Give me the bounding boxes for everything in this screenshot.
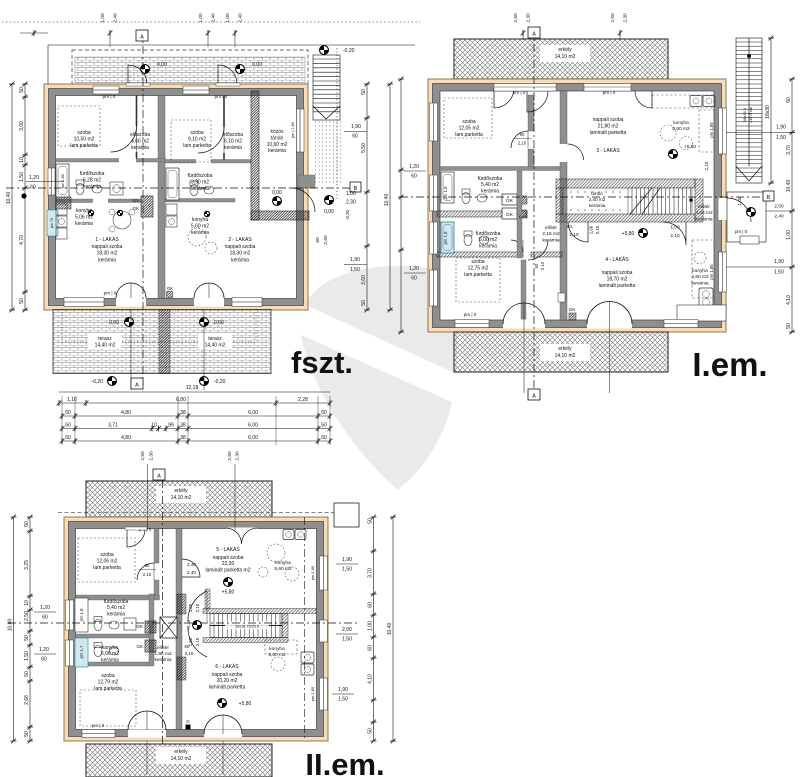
svg-text:szoba: szoba bbox=[77, 130, 91, 136]
svg-text:GK: GK bbox=[506, 212, 514, 218]
svg-text:9,00 m2: 9,00 m2 bbox=[268, 652, 286, 658]
svg-text:szoba: szoba bbox=[100, 552, 114, 558]
svg-text:60: 60 bbox=[368, 602, 374, 608]
svg-text:12,06 m2: 12,06 m2 bbox=[97, 558, 118, 564]
svg-text:konyha: konyha bbox=[269, 646, 285, 652]
svg-text:pm 1,7: pm 1,7 bbox=[79, 645, 84, 658]
svg-text:90: 90 bbox=[145, 563, 150, 568]
svg-text:1,00: 1,00 bbox=[188, 637, 193, 646]
svg-text:5,28 m2: 5,28 m2 bbox=[83, 177, 101, 183]
svg-text:2,40: 2,40 bbox=[113, 13, 119, 23]
svg-text:60: 60 bbox=[41, 657, 47, 663]
svg-text:4,60 m2: 4,60 m2 bbox=[131, 138, 149, 144]
svg-text:60: 60 bbox=[368, 645, 374, 651]
svg-text:10: 10 bbox=[19, 157, 25, 163]
svg-text:terasz: terasz bbox=[208, 336, 222, 342]
svg-text:3,00: 3,00 bbox=[19, 121, 25, 131]
svg-text:2,30: 2,30 bbox=[149, 451, 155, 461]
svg-text:1,00: 1,00 bbox=[346, 191, 356, 197]
svg-text:60: 60 bbox=[352, 134, 358, 140]
svg-text:2,40 m2: 2,40 m2 bbox=[589, 197, 606, 202]
svg-text:pm 1,85: pm 1,85 bbox=[709, 122, 714, 138]
svg-text:5,50: 5,50 bbox=[361, 143, 367, 153]
svg-text:kerámia: kerámia bbox=[481, 188, 499, 194]
svg-text:16x18,75/25,0: 16x18,75/25,0 bbox=[235, 625, 259, 629]
svg-text:fürdőszoba: fürdőszoba bbox=[478, 176, 503, 182]
svg-text:2 - LAKÁS: 2 - LAKÁS bbox=[228, 236, 252, 243]
svg-text:10: 10 bbox=[24, 600, 30, 606]
svg-text:50: 50 bbox=[65, 422, 71, 428]
svg-text:3,90 m2: 3,90 m2 bbox=[191, 179, 209, 185]
svg-text:10,40: 10,40 bbox=[6, 192, 12, 205]
svg-text:50: 50 bbox=[24, 635, 30, 641]
svg-text:szoba: szoba bbox=[190, 130, 204, 136]
svg-text:18,30 m2: 18,30 m2 bbox=[97, 251, 118, 257]
svg-text:14,10 m2: 14,10 m2 bbox=[171, 756, 192, 762]
svg-text:14,10 m2: 14,10 m2 bbox=[555, 353, 576, 359]
svg-text:konyha: konyha bbox=[102, 645, 118, 651]
svg-text:4,70: 4,70 bbox=[19, 235, 25, 245]
svg-text:laminált parketta: laminált parketta bbox=[599, 283, 636, 289]
svg-text:kerámia: kerámia bbox=[479, 243, 497, 249]
svg-text:5,60 m2: 5,60 m2 bbox=[274, 566, 292, 572]
svg-text:10,00: 10,00 bbox=[8, 619, 14, 632]
svg-text:lam.parketta: lam.parketta bbox=[93, 565, 121, 571]
svg-text:60: 60 bbox=[534, 263, 539, 268]
svg-text:5 - LAKÁS: 5 - LAKÁS bbox=[216, 546, 240, 553]
svg-text:2,50: 2,50 bbox=[227, 451, 233, 461]
svg-text:50: 50 bbox=[786, 323, 792, 329]
svg-text:38: 38 bbox=[180, 422, 186, 428]
svg-text:10,60 m2: 10,60 m2 bbox=[267, 142, 288, 148]
svg-text:pm 1,8: pm 1,8 bbox=[443, 231, 448, 244]
svg-text:II.em.: II.em. bbox=[305, 747, 384, 777]
svg-text:0,00: 0,00 bbox=[109, 320, 119, 326]
svg-text:4,80: 4,80 bbox=[121, 435, 131, 441]
svg-text:+5,60: +5,60 bbox=[684, 144, 696, 150]
svg-text:-0,20: -0,20 bbox=[343, 48, 355, 54]
svg-text:50: 50 bbox=[24, 731, 30, 737]
svg-text:1,00: 1,00 bbox=[670, 225, 680, 231]
svg-text:előtér: előtér bbox=[157, 645, 169, 651]
svg-text:fürdőszoba: fürdőszoba bbox=[80, 171, 105, 177]
svg-text:1,90: 1,90 bbox=[776, 125, 786, 131]
svg-text:kerámia: kerámia bbox=[131, 145, 149, 151]
svg-text:50: 50 bbox=[321, 435, 327, 441]
svg-text:kerámia: kerámia bbox=[691, 280, 708, 286]
svg-text:50: 50 bbox=[24, 521, 30, 527]
svg-text:laminált parketta: laminált parketta bbox=[209, 684, 246, 690]
svg-text:60: 60 bbox=[42, 615, 48, 621]
svg-text:18,70 m2: 18,70 m2 bbox=[607, 277, 628, 283]
svg-text:erkély: erkély bbox=[174, 749, 188, 755]
svg-text:pm | 0: pm | 0 bbox=[464, 312, 477, 317]
svg-text:0,00: 0,00 bbox=[252, 62, 262, 68]
svg-text:4,60 m2: 4,60 m2 bbox=[691, 274, 709, 280]
svg-text:+5,80: +5,80 bbox=[222, 590, 235, 596]
svg-text:szv: szv bbox=[132, 198, 139, 203]
svg-text:A: A bbox=[532, 394, 536, 400]
svg-text:12,75 m2: 12,75 m2 bbox=[468, 265, 489, 271]
svg-text:I.em.: I.em. bbox=[692, 346, 767, 383]
svg-text:-0,20: -0,20 bbox=[214, 379, 226, 385]
svg-text:laminált parketta m2: laminált parketta m2 bbox=[205, 567, 250, 573]
svg-text:1,00: 1,00 bbox=[198, 13, 204, 23]
svg-text:10,50 m2: 10,50 m2 bbox=[74, 136, 95, 142]
svg-text:+5,80: +5,80 bbox=[239, 701, 252, 707]
svg-text:1,50: 1,50 bbox=[342, 567, 352, 573]
svg-text:kerámia: kerámia bbox=[107, 611, 125, 617]
svg-text:2,66: 2,66 bbox=[24, 695, 30, 705]
svg-text:pm | 0: pm | 0 bbox=[92, 723, 105, 728]
svg-text:21,80 m2: 21,80 m2 bbox=[598, 124, 619, 130]
svg-text:erkély: erkély bbox=[558, 346, 572, 352]
svg-text:1,00: 1,00 bbox=[225, 13, 231, 23]
svg-text:lam.parketta: lam.parketta bbox=[70, 143, 98, 149]
svg-text:tároló: tároló bbox=[271, 135, 284, 141]
svg-text:12,05 m2: 12,05 m2 bbox=[459, 125, 480, 131]
svg-text:20,20 m2: 20,20 m2 bbox=[217, 678, 238, 684]
svg-text:1,50: 1,50 bbox=[19, 172, 25, 182]
svg-text:3,70: 3,70 bbox=[368, 568, 374, 578]
svg-text:50: 50 bbox=[24, 671, 30, 677]
svg-text:38: 38 bbox=[180, 435, 186, 441]
svg-text:lam.parketta: lam.parketta bbox=[455, 132, 483, 138]
svg-text:3,25: 3,25 bbox=[24, 560, 30, 570]
svg-text:kerámia: kerámia bbox=[154, 657, 171, 663]
svg-text:4,10: 4,10 bbox=[786, 295, 792, 305]
svg-text:60: 60 bbox=[315, 237, 321, 243]
svg-text:A: A bbox=[157, 474, 161, 480]
svg-text:2,40: 2,40 bbox=[238, 13, 244, 23]
svg-text:2,50: 2,50 bbox=[24, 611, 30, 621]
svg-text:6,00: 6,00 bbox=[248, 422, 258, 428]
svg-text:2,10: 2,10 bbox=[540, 261, 545, 270]
svg-text:1,50: 1,50 bbox=[342, 637, 352, 643]
svg-text:2,60: 2,60 bbox=[323, 235, 329, 245]
svg-text:1,20: 1,20 bbox=[409, 266, 419, 272]
svg-text:5,60 m2: 5,60 m2 bbox=[672, 126, 690, 132]
svg-text:kerámia: kerámia bbox=[83, 184, 101, 190]
svg-text:nappali szoba: nappali szoba bbox=[213, 555, 244, 561]
svg-text:0,00: 0,00 bbox=[324, 209, 334, 215]
svg-text:pm | 1,80: pm | 1,80 bbox=[291, 122, 295, 138]
svg-text:pm 75: pm 75 bbox=[50, 218, 54, 229]
svg-text:2,10: 2,10 bbox=[595, 225, 600, 234]
svg-text:1,50: 1,50 bbox=[350, 267, 360, 273]
svg-text:nappali szoba: nappali szoba bbox=[225, 244, 256, 250]
svg-text:1,90: 1,90 bbox=[342, 557, 352, 563]
svg-text:GK: GK bbox=[136, 624, 144, 629]
svg-text:6,00: 6,00 bbox=[248, 435, 258, 441]
svg-text:2,10: 2,10 bbox=[195, 603, 200, 612]
svg-text:+5,40: +5,40 bbox=[186, 619, 191, 630]
svg-text:kerámia: kerámia bbox=[231, 257, 249, 263]
svg-text:GK: GK bbox=[506, 198, 514, 204]
svg-text:2,50: 2,50 bbox=[610, 13, 616, 23]
svg-text:konyha: konyha bbox=[192, 217, 208, 223]
svg-text:nappali szoba: nappali szoba bbox=[593, 117, 624, 123]
svg-text:fürdőszoba: fürdőszoba bbox=[188, 173, 213, 179]
svg-text:=16,3 cm: =16,3 cm bbox=[748, 106, 753, 123]
svg-text:fürdőszoba: fürdőszoba bbox=[476, 231, 501, 237]
svg-text:1,90: 1,90 bbox=[774, 259, 784, 265]
svg-text:0,00: 0,00 bbox=[214, 320, 224, 326]
svg-text:10,40: 10,40 bbox=[786, 180, 792, 193]
svg-text:pm | 0: pm | 0 bbox=[215, 94, 228, 99]
svg-text:GK: GK bbox=[167, 286, 173, 291]
svg-text:10,40: 10,40 bbox=[384, 194, 390, 207]
svg-text:kerámia: kerámia bbox=[101, 657, 119, 663]
svg-text:14,10 m2: 14,10 m2 bbox=[555, 54, 576, 60]
svg-text:10: 10 bbox=[151, 422, 157, 428]
svg-text:6,80: 6,80 bbox=[176, 397, 186, 403]
svg-text:kerámia: kerámia bbox=[268, 148, 286, 154]
svg-text:9,10 m2: 9,10 m2 bbox=[188, 136, 206, 142]
svg-text:pm | 0: pm | 0 bbox=[104, 291, 117, 296]
svg-text:2,10: 2,10 bbox=[518, 141, 527, 146]
svg-text:GK: GK bbox=[569, 307, 577, 312]
svg-text:lam.parketta: lam.parketta bbox=[183, 143, 211, 149]
svg-text:pm 1,8: pm 1,8 bbox=[443, 186, 448, 199]
svg-text:konyha: konyha bbox=[673, 120, 689, 126]
svg-text:pm 1,85: pm 1,85 bbox=[709, 264, 714, 280]
svg-text:1,90: 1,90 bbox=[350, 257, 360, 263]
svg-text:-0,20: -0,20 bbox=[92, 379, 104, 385]
svg-text:kerámia: kerámia bbox=[542, 237, 559, 243]
svg-text:1 - LAKÁS: 1 - LAKÁS bbox=[95, 236, 119, 243]
svg-text:1,50: 1,50 bbox=[338, 697, 348, 703]
svg-text:2,30: 2,30 bbox=[526, 13, 532, 23]
svg-text:1,00: 1,00 bbox=[188, 603, 193, 612]
svg-text:2,40: 2,40 bbox=[187, 570, 196, 575]
svg-text:nappali szoba: nappali szoba bbox=[92, 244, 123, 250]
svg-text:3 - LAKÁS: 3 - LAKÁS bbox=[596, 147, 620, 154]
svg-text:1,50: 1,50 bbox=[24, 651, 30, 661]
svg-text:6,10 m2: 6,10 m2 bbox=[224, 138, 242, 144]
svg-text:5,40 m2: 5,40 m2 bbox=[107, 605, 125, 611]
svg-text:2,30: 2,30 bbox=[346, 200, 356, 206]
svg-text:18x16,3: 18x16,3 bbox=[742, 107, 747, 122]
svg-text:1,10: 1,10 bbox=[67, 397, 77, 403]
svg-text:2,30: 2,30 bbox=[623, 13, 629, 23]
svg-text:1,00: 1,00 bbox=[737, 196, 742, 205]
svg-text:pm | 0: pm | 0 bbox=[735, 229, 748, 234]
svg-text:50: 50 bbox=[19, 87, 25, 93]
svg-text:1,20: 1,20 bbox=[40, 605, 50, 611]
svg-text:1,95 m2: 1,95 m2 bbox=[154, 651, 172, 657]
svg-text:3,60: 3,60 bbox=[361, 275, 367, 285]
svg-text:90: 90 bbox=[520, 132, 525, 137]
svg-text:12,18: 12,18 bbox=[186, 385, 199, 391]
svg-text:pm 1,80: pm 1,80 bbox=[61, 174, 65, 188]
svg-text:4 - LAKÁS: 4 - LAKÁS bbox=[605, 256, 629, 263]
svg-text:+5,80: +5,80 bbox=[622, 231, 635, 237]
svg-text:2,15 m2: 2,15 m2 bbox=[542, 231, 560, 237]
svg-text:laminált parketta: laminált parketta bbox=[590, 130, 627, 136]
svg-text:6,00: 6,00 bbox=[248, 410, 258, 416]
svg-text:kerámia: kerámia bbox=[224, 145, 242, 151]
svg-text:pm 1,85: pm 1,85 bbox=[310, 686, 315, 701]
svg-text:-0,20: -0,20 bbox=[345, 209, 350, 220]
svg-text:12,79 m2: 12,79 m2 bbox=[98, 679, 119, 685]
svg-text:kerámia: kerámia bbox=[589, 203, 606, 208]
svg-text:1,90: 1,90 bbox=[351, 124, 361, 130]
svg-text:2,28: 2,28 bbox=[298, 397, 308, 403]
svg-text:előtér: előtér bbox=[545, 225, 557, 231]
svg-text:2,10: 2,10 bbox=[704, 161, 709, 170]
svg-text:3,71: 3,71 bbox=[108, 422, 118, 428]
svg-text:2,40: 2,40 bbox=[211, 13, 217, 23]
svg-text:erkély: erkély bbox=[558, 47, 572, 53]
svg-text:pm 1,85: pm 1,85 bbox=[310, 565, 315, 580]
svg-text:0,00: 0,00 bbox=[272, 190, 282, 196]
svg-text:38: 38 bbox=[180, 410, 186, 416]
svg-text:60: 60 bbox=[30, 185, 36, 191]
svg-text:60: 60 bbox=[411, 276, 417, 282]
svg-text:50: 50 bbox=[368, 728, 374, 734]
svg-text:tároló: tároló bbox=[591, 191, 603, 196]
svg-text:2,40: 2,40 bbox=[187, 562, 196, 567]
svg-text:GK: GK bbox=[136, 644, 144, 649]
svg-text:50: 50 bbox=[361, 89, 367, 95]
svg-text:1,00: 1,00 bbox=[100, 13, 106, 23]
svg-text:kerámia: kerámia bbox=[98, 257, 116, 263]
svg-text:fürdőszoba: fürdőszoba bbox=[104, 599, 129, 605]
svg-text:előszoba: előszoba bbox=[130, 132, 150, 138]
svg-text:22,30: 22,30 bbox=[222, 561, 235, 567]
svg-text:2,10: 2,10 bbox=[195, 637, 200, 646]
svg-text:erkély: erkély bbox=[174, 488, 188, 494]
svg-text:0,00: 0,00 bbox=[157, 62, 167, 68]
svg-text:4,63 m2: 4,63 m2 bbox=[695, 210, 713, 216]
svg-text:1,20: 1,20 bbox=[39, 647, 49, 653]
svg-text:2,40: 2,40 bbox=[774, 214, 784, 220]
svg-text:kerámia: kerámia bbox=[695, 216, 712, 222]
svg-text:lam.parketta: lam.parketta bbox=[94, 686, 122, 692]
svg-text:1,50: 1,50 bbox=[774, 270, 784, 276]
svg-text:1,00: 1,00 bbox=[786, 230, 792, 240]
svg-text:2,00: 2,00 bbox=[342, 627, 352, 633]
svg-text:előtér: előtér bbox=[698, 204, 710, 210]
svg-text:1,00: 1,00 bbox=[368, 621, 374, 631]
svg-text:fszt.: fszt. bbox=[291, 345, 353, 380]
svg-text:50: 50 bbox=[321, 422, 327, 428]
svg-text:kerámia: kerámia bbox=[191, 230, 209, 236]
svg-text:5,40 m2: 5,40 m2 bbox=[481, 182, 499, 188]
svg-text:18x30: 18x30 bbox=[765, 105, 771, 119]
svg-text:1,90: 1,90 bbox=[338, 687, 348, 693]
svg-text:50: 50 bbox=[65, 410, 71, 416]
svg-text:előszoba: előszoba bbox=[223, 132, 243, 138]
svg-text:pm | 0: pm | 0 bbox=[103, 94, 116, 99]
svg-text:99: 99 bbox=[168, 422, 174, 428]
svg-text:4,10: 4,10 bbox=[368, 674, 374, 684]
svg-text:A: A bbox=[532, 32, 536, 38]
svg-text:2,00: 2,00 bbox=[774, 204, 784, 210]
svg-text:A: A bbox=[140, 35, 144, 41]
svg-text:nappali szoba: nappali szoba bbox=[602, 270, 633, 276]
svg-text:G: G bbox=[186, 719, 190, 724]
svg-text:60,: 60, bbox=[567, 224, 574, 230]
svg-text:1,50: 1,50 bbox=[776, 135, 786, 141]
svg-text:50: 50 bbox=[361, 300, 367, 306]
svg-text:2,50: 2,50 bbox=[513, 13, 519, 23]
svg-text:50: 50 bbox=[368, 518, 374, 524]
svg-text:2,10: 2,10 bbox=[670, 233, 680, 239]
svg-text:10,40: 10,40 bbox=[387, 623, 393, 636]
svg-text:50: 50 bbox=[786, 97, 792, 103]
svg-text:2,50: 2,50 bbox=[140, 451, 146, 461]
svg-text:50: 50 bbox=[65, 435, 71, 441]
svg-text:50: 50 bbox=[321, 410, 327, 416]
svg-text:szoba: szoba bbox=[101, 673, 115, 679]
svg-text:1,20: 1,20 bbox=[409, 164, 419, 170]
svg-text:GK: GK bbox=[133, 206, 139, 211]
svg-text:szoba: szoba bbox=[471, 259, 485, 265]
svg-text:5,60 m2: 5,60 m2 bbox=[191, 223, 209, 229]
svg-text:B: B bbox=[767, 195, 771, 201]
svg-text:konyha: konyha bbox=[692, 268, 708, 274]
svg-text:A: A bbox=[135, 383, 139, 389]
svg-text:14,40 m2: 14,40 m2 bbox=[205, 343, 226, 349]
svg-text:lam.parketta: lam.parketta bbox=[464, 272, 492, 278]
svg-text:2,30: 2,30 bbox=[235, 451, 241, 461]
svg-text:4,80: 4,80 bbox=[121, 410, 131, 416]
svg-text:60: 60 bbox=[411, 174, 417, 180]
svg-text:terasz: terasz bbox=[98, 336, 112, 342]
svg-text:konyha: konyha bbox=[275, 560, 291, 566]
svg-text:14,10 m2: 14,10 m2 bbox=[171, 495, 192, 501]
svg-text:3,70: 3,70 bbox=[786, 145, 792, 155]
svg-text:1,00: 1,00 bbox=[589, 225, 594, 234]
svg-text:közös: közös bbox=[270, 129, 284, 135]
svg-text:6 - LAKÁS: 6 - LAKÁS bbox=[215, 663, 239, 670]
svg-text:kerámia: kerámia bbox=[75, 221, 93, 227]
svg-text:szoba: szoba bbox=[462, 119, 476, 125]
svg-text:pm 1,8: pm 1,8 bbox=[79, 608, 84, 621]
svg-text:5,00 m2: 5,00 m2 bbox=[479, 237, 497, 243]
svg-text:5,00 m2: 5,00 m2 bbox=[101, 651, 119, 657]
svg-text:14,40 m2: 14,40 m2 bbox=[95, 343, 116, 349]
svg-text:2,10: 2,10 bbox=[143, 572, 152, 577]
svg-text:2,10: 2,10 bbox=[185, 651, 194, 656]
svg-text:nappali szoba: nappali szoba bbox=[212, 672, 243, 678]
svg-text:1,20: 1,20 bbox=[29, 175, 39, 181]
svg-text:kerámia: kerámia bbox=[191, 186, 209, 192]
svg-text:18,30 m2: 18,30 m2 bbox=[230, 251, 251, 257]
svg-text:50: 50 bbox=[19, 298, 25, 304]
